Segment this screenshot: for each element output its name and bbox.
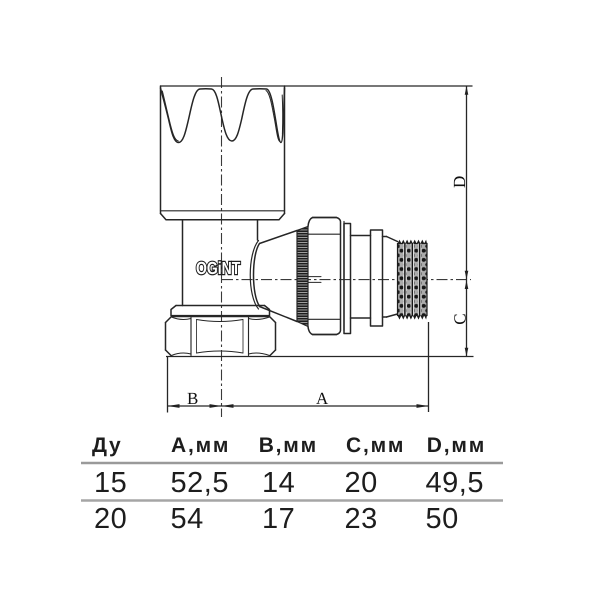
svg-text:D: D [450,176,469,188]
svg-text:С,мм: С,мм [346,434,405,457]
svg-text:49,5: 49,5 [426,467,484,499]
svg-text:A: A [316,389,329,408]
svg-text:C: C [451,313,470,324]
svg-text:23: 23 [345,503,378,535]
svg-text:Ду: Ду [92,434,123,457]
svg-text:54: 54 [171,503,204,535]
svg-text:14: 14 [262,467,295,499]
svg-text:52,5: 52,5 [171,467,229,499]
svg-text:20: 20 [94,503,127,535]
svg-text:В,мм: В,мм [259,434,318,457]
svg-text:50: 50 [426,503,459,535]
svg-text:А,мм: А,мм [171,434,230,457]
svg-text:B: B [187,389,198,408]
svg-text:20: 20 [345,467,378,499]
svg-text:17: 17 [262,503,295,535]
svg-text:15: 15 [94,467,127,499]
svg-text:OGiNT: OGiNT [196,258,241,278]
svg-text:D,мм: D,мм [427,434,486,457]
